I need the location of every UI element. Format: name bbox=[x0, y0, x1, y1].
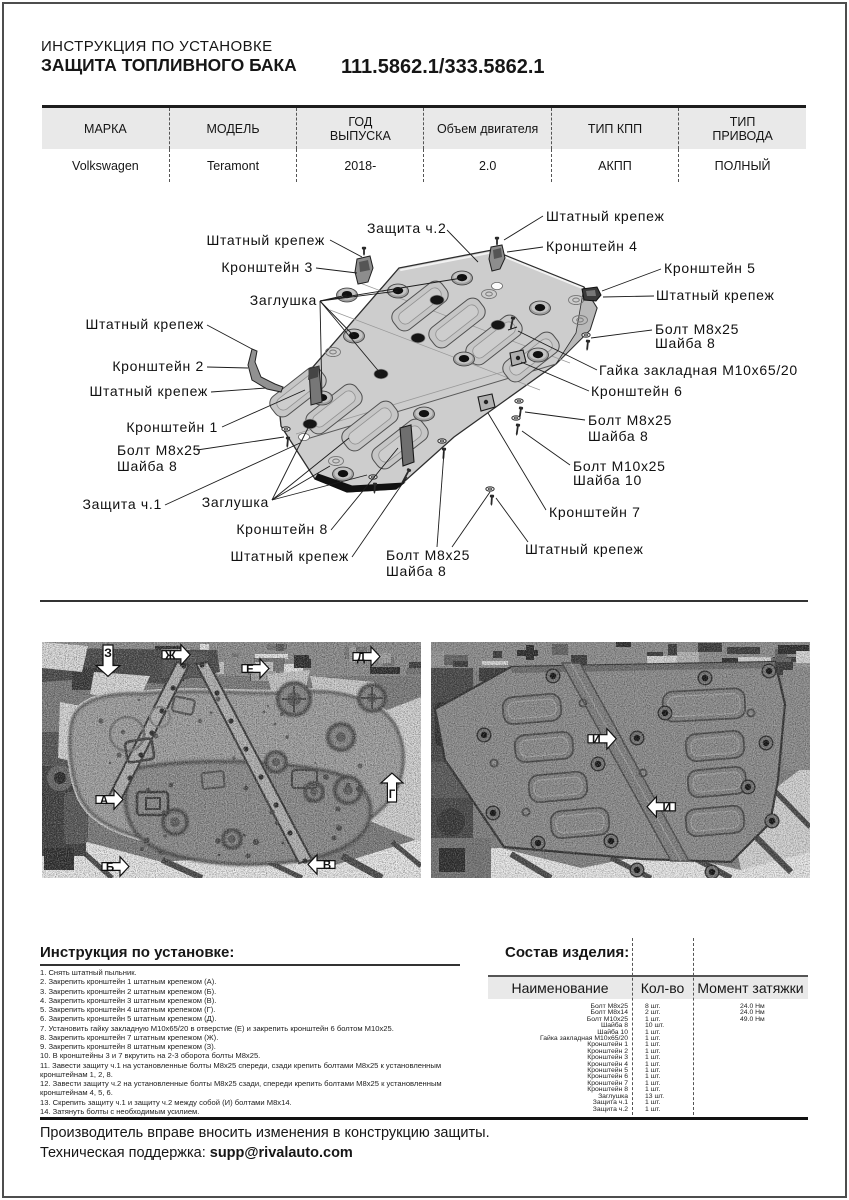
svg-text:Кронштейн 2: Кронштейн 2 bbox=[112, 358, 204, 374]
svg-text:Ж: Ж bbox=[164, 649, 176, 663]
svg-text:Защита ч.2: Защита ч.2 bbox=[367, 220, 446, 236]
svg-text:Защита ч.1: Защита ч.1 bbox=[83, 496, 162, 512]
svg-text:Шайба 8: Шайба 8 bbox=[655, 335, 716, 351]
svg-text:Кронштейн 4: Кронштейн 4 bbox=[546, 238, 638, 254]
svg-text:Г: Г bbox=[389, 789, 396, 801]
svg-text:Е: Е bbox=[246, 664, 254, 676]
svg-text:Кронштейн 6: Кронштейн 6 bbox=[591, 383, 683, 399]
svg-text:З: З bbox=[104, 646, 112, 660]
svg-text:Штатный крепеж: Штатный крепеж bbox=[206, 232, 325, 248]
svg-text:Болт М8х25: Болт М8х25 bbox=[588, 412, 672, 428]
svg-text:В: В bbox=[323, 860, 331, 872]
svg-text:Шайба 8: Шайба 8 bbox=[386, 563, 447, 579]
svg-text:Штатный крепеж: Штатный крепеж bbox=[230, 548, 349, 564]
svg-text:Кронштейн 3: Кронштейн 3 bbox=[221, 259, 313, 275]
svg-text:А: А bbox=[100, 795, 108, 807]
svg-text:Штатный крепеж: Штатный крепеж bbox=[525, 541, 644, 557]
svg-text:Заглушка: Заглушка bbox=[202, 494, 269, 510]
svg-text:Кронштейн 8: Кронштейн 8 bbox=[236, 521, 328, 537]
svg-text:Кронштейн 7: Кронштейн 7 bbox=[549, 504, 641, 520]
svg-text:Д: Д bbox=[357, 652, 365, 664]
svg-text:Шайба 8: Шайба 8 bbox=[117, 458, 178, 474]
svg-text:Кронштейн 5: Кронштейн 5 bbox=[664, 260, 756, 276]
svg-text:Шайба 8: Шайба 8 bbox=[588, 428, 649, 444]
svg-text:Штатный крепеж: Штатный крепеж bbox=[89, 383, 208, 399]
svg-text:Гайка закладная М10х65/20: Гайка закладная М10х65/20 bbox=[599, 362, 798, 378]
svg-text:Заглушка: Заглушка bbox=[250, 292, 317, 308]
svg-text:Штатный крепеж: Штатный крепеж bbox=[546, 208, 665, 224]
svg-text:Б: Б bbox=[106, 862, 114, 874]
svg-text:Штатный крепеж: Штатный крепеж bbox=[656, 287, 775, 303]
svg-text:И: И bbox=[663, 801, 672, 815]
svg-text:Болт М8х25: Болт М8х25 bbox=[386, 547, 470, 563]
svg-text:Штатный крепеж: Штатный крепеж bbox=[85, 316, 204, 332]
svg-text:Кронштейн 1: Кронштейн 1 bbox=[126, 419, 218, 435]
svg-text:Шайба 10: Шайба 10 bbox=[573, 472, 642, 488]
svg-text:Болт М8х25: Болт М8х25 bbox=[117, 442, 201, 458]
svg-text:И: И bbox=[592, 733, 601, 747]
